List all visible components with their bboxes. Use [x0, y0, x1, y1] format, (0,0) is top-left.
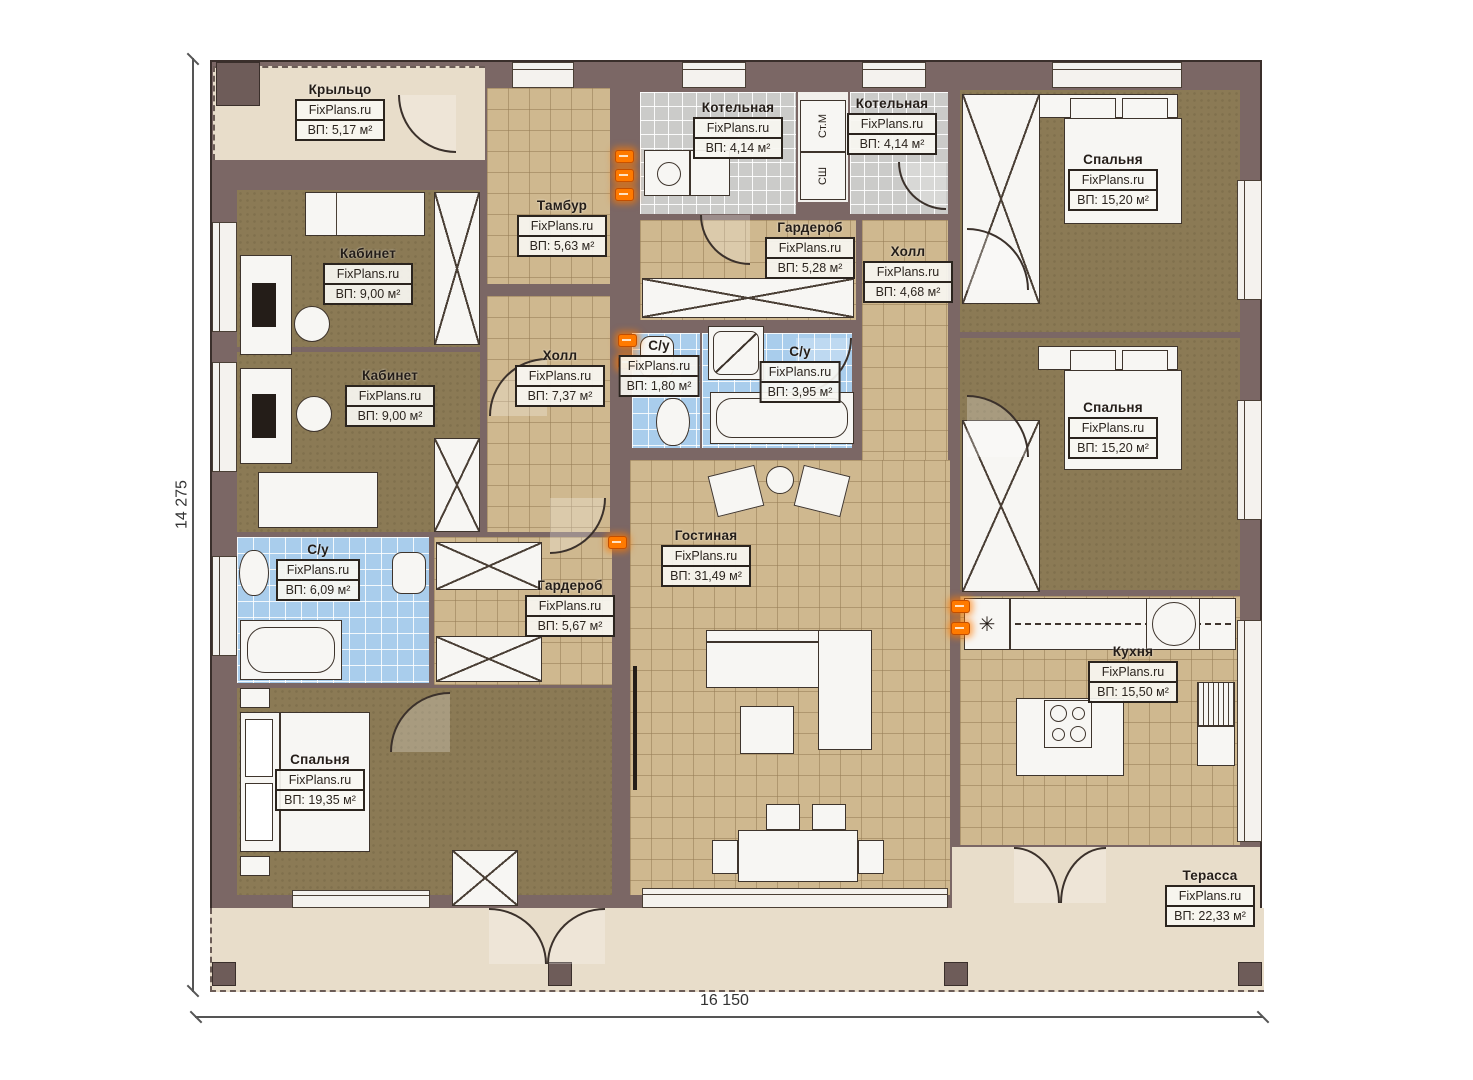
room-name: Спальня: [1068, 152, 1158, 167]
room-area: ВП: 5,28 м²: [767, 259, 853, 277]
window: [682, 62, 746, 88]
fixplans-watermark: FixPlans.ru: [347, 387, 433, 407]
fixplans-watermark: FixPlans.ru: [849, 115, 935, 135]
room-area: ВП: 5,63 м²: [519, 237, 605, 255]
bathtub: [240, 620, 342, 680]
nightstand: [240, 856, 270, 876]
office-chair: [296, 396, 332, 432]
room-label-office-1: Кабинет FixPlans.ru ВП: 9,00 м²: [323, 246, 413, 305]
room-area: ВП: 19,35 м²: [277, 791, 363, 809]
kitchen-sink: [1146, 598, 1200, 650]
room-name: С/у: [276, 542, 360, 557]
label-box: FixPlans.ru ВП: 31,49 м²: [661, 545, 751, 587]
fixplans-watermark: FixPlans.ru: [325, 265, 411, 285]
burner-icon: [1052, 728, 1065, 741]
window: [212, 556, 237, 656]
room-area: ВП: 3,95 м²: [762, 383, 839, 401]
room-name: Холл: [515, 348, 605, 363]
radiator-icon: [615, 169, 634, 182]
floor-plan: Ст.М СШ ✳: [0, 0, 1473, 1080]
label-box: FixPlans.ru ВП: 4,14 м²: [693, 117, 783, 159]
toilet: [392, 552, 426, 594]
tv: [633, 666, 637, 790]
label-box: FixPlans.ru ВП: 5,63 м²: [517, 215, 607, 257]
room-label-wardrobe-2: Гардероб FixPlans.ru ВП: 5,67 м²: [525, 578, 615, 637]
sliding-door-window: [642, 888, 948, 908]
label-box: FixPlans.ru ВП: 15,50 м²: [1088, 661, 1178, 703]
terrace-pillar: [944, 962, 968, 986]
room-name: Тамбур: [517, 198, 607, 213]
label-box: FixPlans.ru ВП: 9,00 м²: [323, 263, 413, 305]
fixplans-watermark: FixPlans.ru: [517, 367, 603, 387]
wall-column: [452, 850, 518, 906]
window: [212, 222, 237, 332]
kitchen-counter: [1010, 598, 1236, 650]
room-name: Котельная: [847, 96, 937, 111]
radiator-icon: [615, 150, 634, 163]
vent-cabinet: ✳: [964, 598, 1010, 650]
closet-label-bottom: СШ: [800, 152, 846, 200]
room-label-boiler-2: Котельная FixPlans.ru ВП: 4,14 м²: [847, 96, 937, 155]
room-name: Кабинет: [345, 368, 435, 383]
room-name: Котельная: [693, 100, 783, 115]
dimension-value-horizontal: 16 150: [700, 992, 749, 1010]
dining-table: [738, 830, 858, 882]
terrace-floor-strip: [210, 908, 1264, 992]
room-label-wc-1: С/у FixPlans.ru ВП: 1,80 м²: [619, 338, 700, 397]
fixplans-watermark: FixPlans.ru: [1167, 887, 1253, 907]
sofa: [258, 472, 378, 528]
room-label-office-2: Кабинет FixPlans.ru ВП: 9,00 м²: [345, 368, 435, 427]
fixplans-watermark: FixPlans.ru: [519, 217, 605, 237]
room-area: ВП: 9,00 м²: [347, 407, 433, 425]
room-area: ВП: 5,67 м²: [527, 617, 613, 635]
room-area: ВП: 15,20 м²: [1070, 191, 1156, 209]
terrace-pillar: [1238, 962, 1262, 986]
radiator-icon: [951, 622, 970, 635]
dimension-value-vertical: 14 275: [173, 480, 191, 529]
office-chair: [294, 306, 330, 342]
room-label-porch: Крыльцо FixPlans.ru ВП: 5,17 м²: [295, 82, 385, 141]
sink: [239, 550, 269, 596]
room-area: ВП: 15,50 м²: [1090, 683, 1176, 701]
burner-icon: [1070, 726, 1086, 742]
dimension-line-vertical: [192, 58, 194, 992]
room-name: Спальня: [1068, 400, 1158, 415]
radiator-icon: [608, 536, 627, 549]
room-name: Кабинет: [323, 246, 413, 261]
nightstand: [240, 688, 270, 708]
sink: [656, 398, 690, 446]
room-name: Гардероб: [525, 578, 615, 593]
room-area: ВП: 1,80 м²: [621, 377, 698, 395]
monitor: [252, 283, 276, 327]
dining-chair: [766, 804, 800, 830]
label-box: FixPlans.ru ВП: 4,68 м²: [863, 261, 953, 303]
fridge: [1197, 682, 1235, 726]
window: [212, 362, 237, 472]
radiator-icon: [615, 188, 634, 201]
room-label-kitchen: Кухня FixPlans.ru ВП: 15,50 м²: [1088, 644, 1178, 703]
room-label-wardrobe-1: Гардероб FixPlans.ru ВП: 5,28 м²: [765, 220, 855, 279]
window: [1237, 400, 1262, 520]
room-name: С/у: [760, 344, 841, 359]
fixplans-watermark: FixPlans.ru: [297, 101, 383, 121]
radiator-icon: [951, 600, 970, 613]
room-label-boiler-1: Котельная FixPlans.ru ВП: 4,14 м²: [693, 100, 783, 159]
window: [292, 890, 430, 908]
label-box: FixPlans.ru ВП: 3,95 м²: [760, 361, 841, 403]
wardrobe-cabinet: [434, 438, 480, 532]
fixplans-watermark: FixPlans.ru: [278, 561, 358, 581]
dining-chair: [858, 840, 884, 874]
room-area: ВП: 4,14 м²: [695, 139, 781, 157]
window: [1237, 180, 1262, 300]
side-table: [766, 466, 794, 494]
room-name: Терасса: [1165, 868, 1255, 883]
label-box: FixPlans.ru ВП: 5,67 м²: [525, 595, 615, 637]
monitor: [252, 394, 276, 438]
fixplans-watermark: FixPlans.ru: [767, 239, 853, 259]
label-box: FixPlans.ru ВП: 15,20 м²: [1068, 417, 1158, 459]
sofa-chaise: [818, 630, 872, 750]
label-box: FixPlans.ru ВП: 19,35 м²: [275, 769, 365, 811]
wardrobe-cabinet: [434, 192, 480, 345]
kitchen-cabinet: [1197, 726, 1235, 766]
room-label-hall-small: Холл FixPlans.ru ВП: 4,68 м²: [863, 244, 953, 303]
wardrobe-unit: [436, 636, 542, 682]
closet-label-top: Ст.М: [800, 100, 846, 152]
room-label-wc-3: С/у FixPlans.ru ВП: 6,09 м²: [276, 542, 360, 601]
fixplans-watermark: FixPlans.ru: [663, 547, 749, 567]
room-name: Гостиная: [661, 528, 751, 543]
fixplans-watermark: FixPlans.ru: [762, 363, 839, 383]
room-area: ВП: 5,17 м²: [297, 121, 383, 139]
label-box: FixPlans.ru ВП: 5,28 м²: [765, 237, 855, 279]
dimension-line-horizontal: [195, 1016, 1263, 1018]
shower: [708, 326, 764, 380]
label-box: FixPlans.ru ВП: 15,20 м²: [1068, 169, 1158, 211]
window: [1052, 62, 1182, 88]
fixplans-watermark: FixPlans.ru: [1070, 171, 1156, 191]
fixplans-watermark: FixPlans.ru: [621, 357, 698, 377]
room-name: Гардероб: [765, 220, 855, 235]
room-area: ВП: 15,20 м²: [1070, 439, 1156, 457]
room-area: ВП: 6,09 м²: [278, 581, 358, 599]
room-area: ВП: 7,37 м²: [517, 387, 603, 405]
fixplans-watermark: FixPlans.ru: [865, 263, 951, 283]
room-area: ВП: 31,49 м²: [663, 567, 749, 585]
label-box: FixPlans.ru ВП: 7,37 м²: [515, 365, 605, 407]
burner-icon: [1050, 705, 1067, 722]
fixplans-watermark: FixPlans.ru: [1090, 663, 1176, 683]
fixplans-watermark: FixPlans.ru: [695, 119, 781, 139]
porch-pillar: [216, 62, 260, 106]
room-name: Кухня: [1088, 644, 1178, 659]
label-box: FixPlans.ru ВП: 22,33 м²: [1165, 885, 1255, 927]
room-label-hall-main: Холл FixPlans.ru ВП: 7,37 м²: [515, 348, 605, 407]
wardrobe-unit: [642, 278, 854, 318]
room-area: ВП: 22,33 м²: [1167, 907, 1253, 925]
terrace-pillar: [548, 962, 572, 986]
room-name: Холл: [863, 244, 953, 259]
room-area: ВП: 4,14 м²: [849, 135, 935, 153]
room-label-wc-2: С/у FixPlans.ru ВП: 3,95 м²: [760, 344, 841, 403]
room-label-bedroom-tr: Спальня FixPlans.ru ВП: 15,20 м²: [1068, 152, 1158, 211]
room-label-terrace: Терасса FixPlans.ru ВП: 22,33 м²: [1165, 868, 1255, 927]
window: [512, 62, 574, 88]
label-box: FixPlans.ru ВП: 4,14 м²: [847, 113, 937, 155]
room-name: Крыльцо: [295, 82, 385, 97]
label-box: FixPlans.ru ВП: 6,09 м²: [276, 559, 360, 601]
fixplans-watermark: FixPlans.ru: [1070, 419, 1156, 439]
fixplans-watermark: FixPlans.ru: [527, 597, 613, 617]
dining-chair: [812, 804, 846, 830]
room-label-bedroom-mr: Спальня FixPlans.ru ВП: 15,20 м²: [1068, 400, 1158, 459]
dining-chair: [712, 840, 738, 874]
room-label-tambour: Тамбур FixPlans.ru ВП: 5,63 м²: [517, 198, 607, 257]
burner-icon: [1072, 707, 1085, 720]
room-name: Спальня: [275, 752, 365, 767]
room-label-living: Гостиная FixPlans.ru ВП: 31,49 м²: [661, 528, 751, 587]
label-box: FixPlans.ru ВП: 5,17 м²: [295, 99, 385, 141]
label-box: FixPlans.ru ВП: 1,80 м²: [619, 355, 700, 397]
room-label-bedroom-bl: Спальня FixPlans.ru ВП: 19,35 м²: [275, 752, 365, 811]
terrace-pillar: [212, 962, 236, 986]
window: [862, 62, 926, 88]
room-name: С/у: [619, 338, 700, 353]
fixplans-watermark: FixPlans.ru: [277, 771, 363, 791]
window: [1237, 620, 1262, 842]
room-area: ВП: 9,00 м²: [325, 285, 411, 303]
room-area: ВП: 4,68 м²: [865, 283, 951, 301]
shelf: [305, 192, 425, 236]
label-box: FixPlans.ru ВП: 9,00 м²: [345, 385, 435, 427]
coffee-table: [740, 706, 794, 754]
